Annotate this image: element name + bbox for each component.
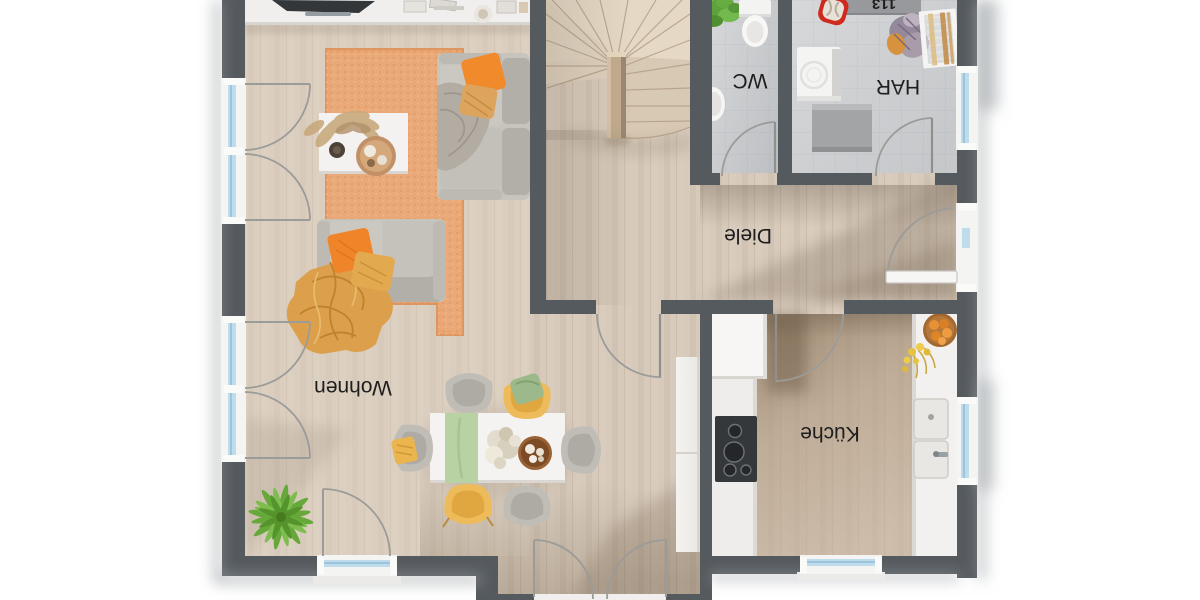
svg-text:WC: WC [733, 69, 768, 92]
svg-text:HAR: HAR [876, 75, 920, 98]
svg-text:113: 113 [872, 0, 896, 12]
svg-text:Küche: Küche [800, 422, 860, 445]
svg-text:Diele: Diele [724, 224, 772, 247]
svg-text:Wohnen: Wohnen [314, 376, 392, 399]
